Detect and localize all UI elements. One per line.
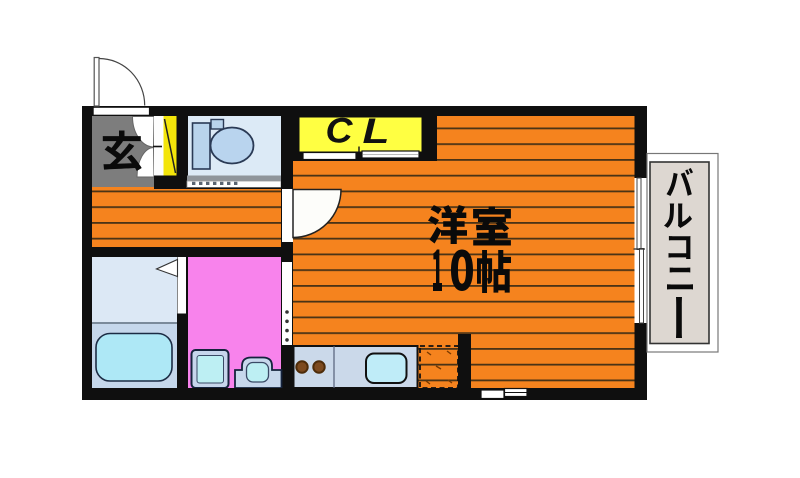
svg-text:C: C	[326, 112, 354, 151]
svg-text:L: L	[363, 112, 390, 151]
